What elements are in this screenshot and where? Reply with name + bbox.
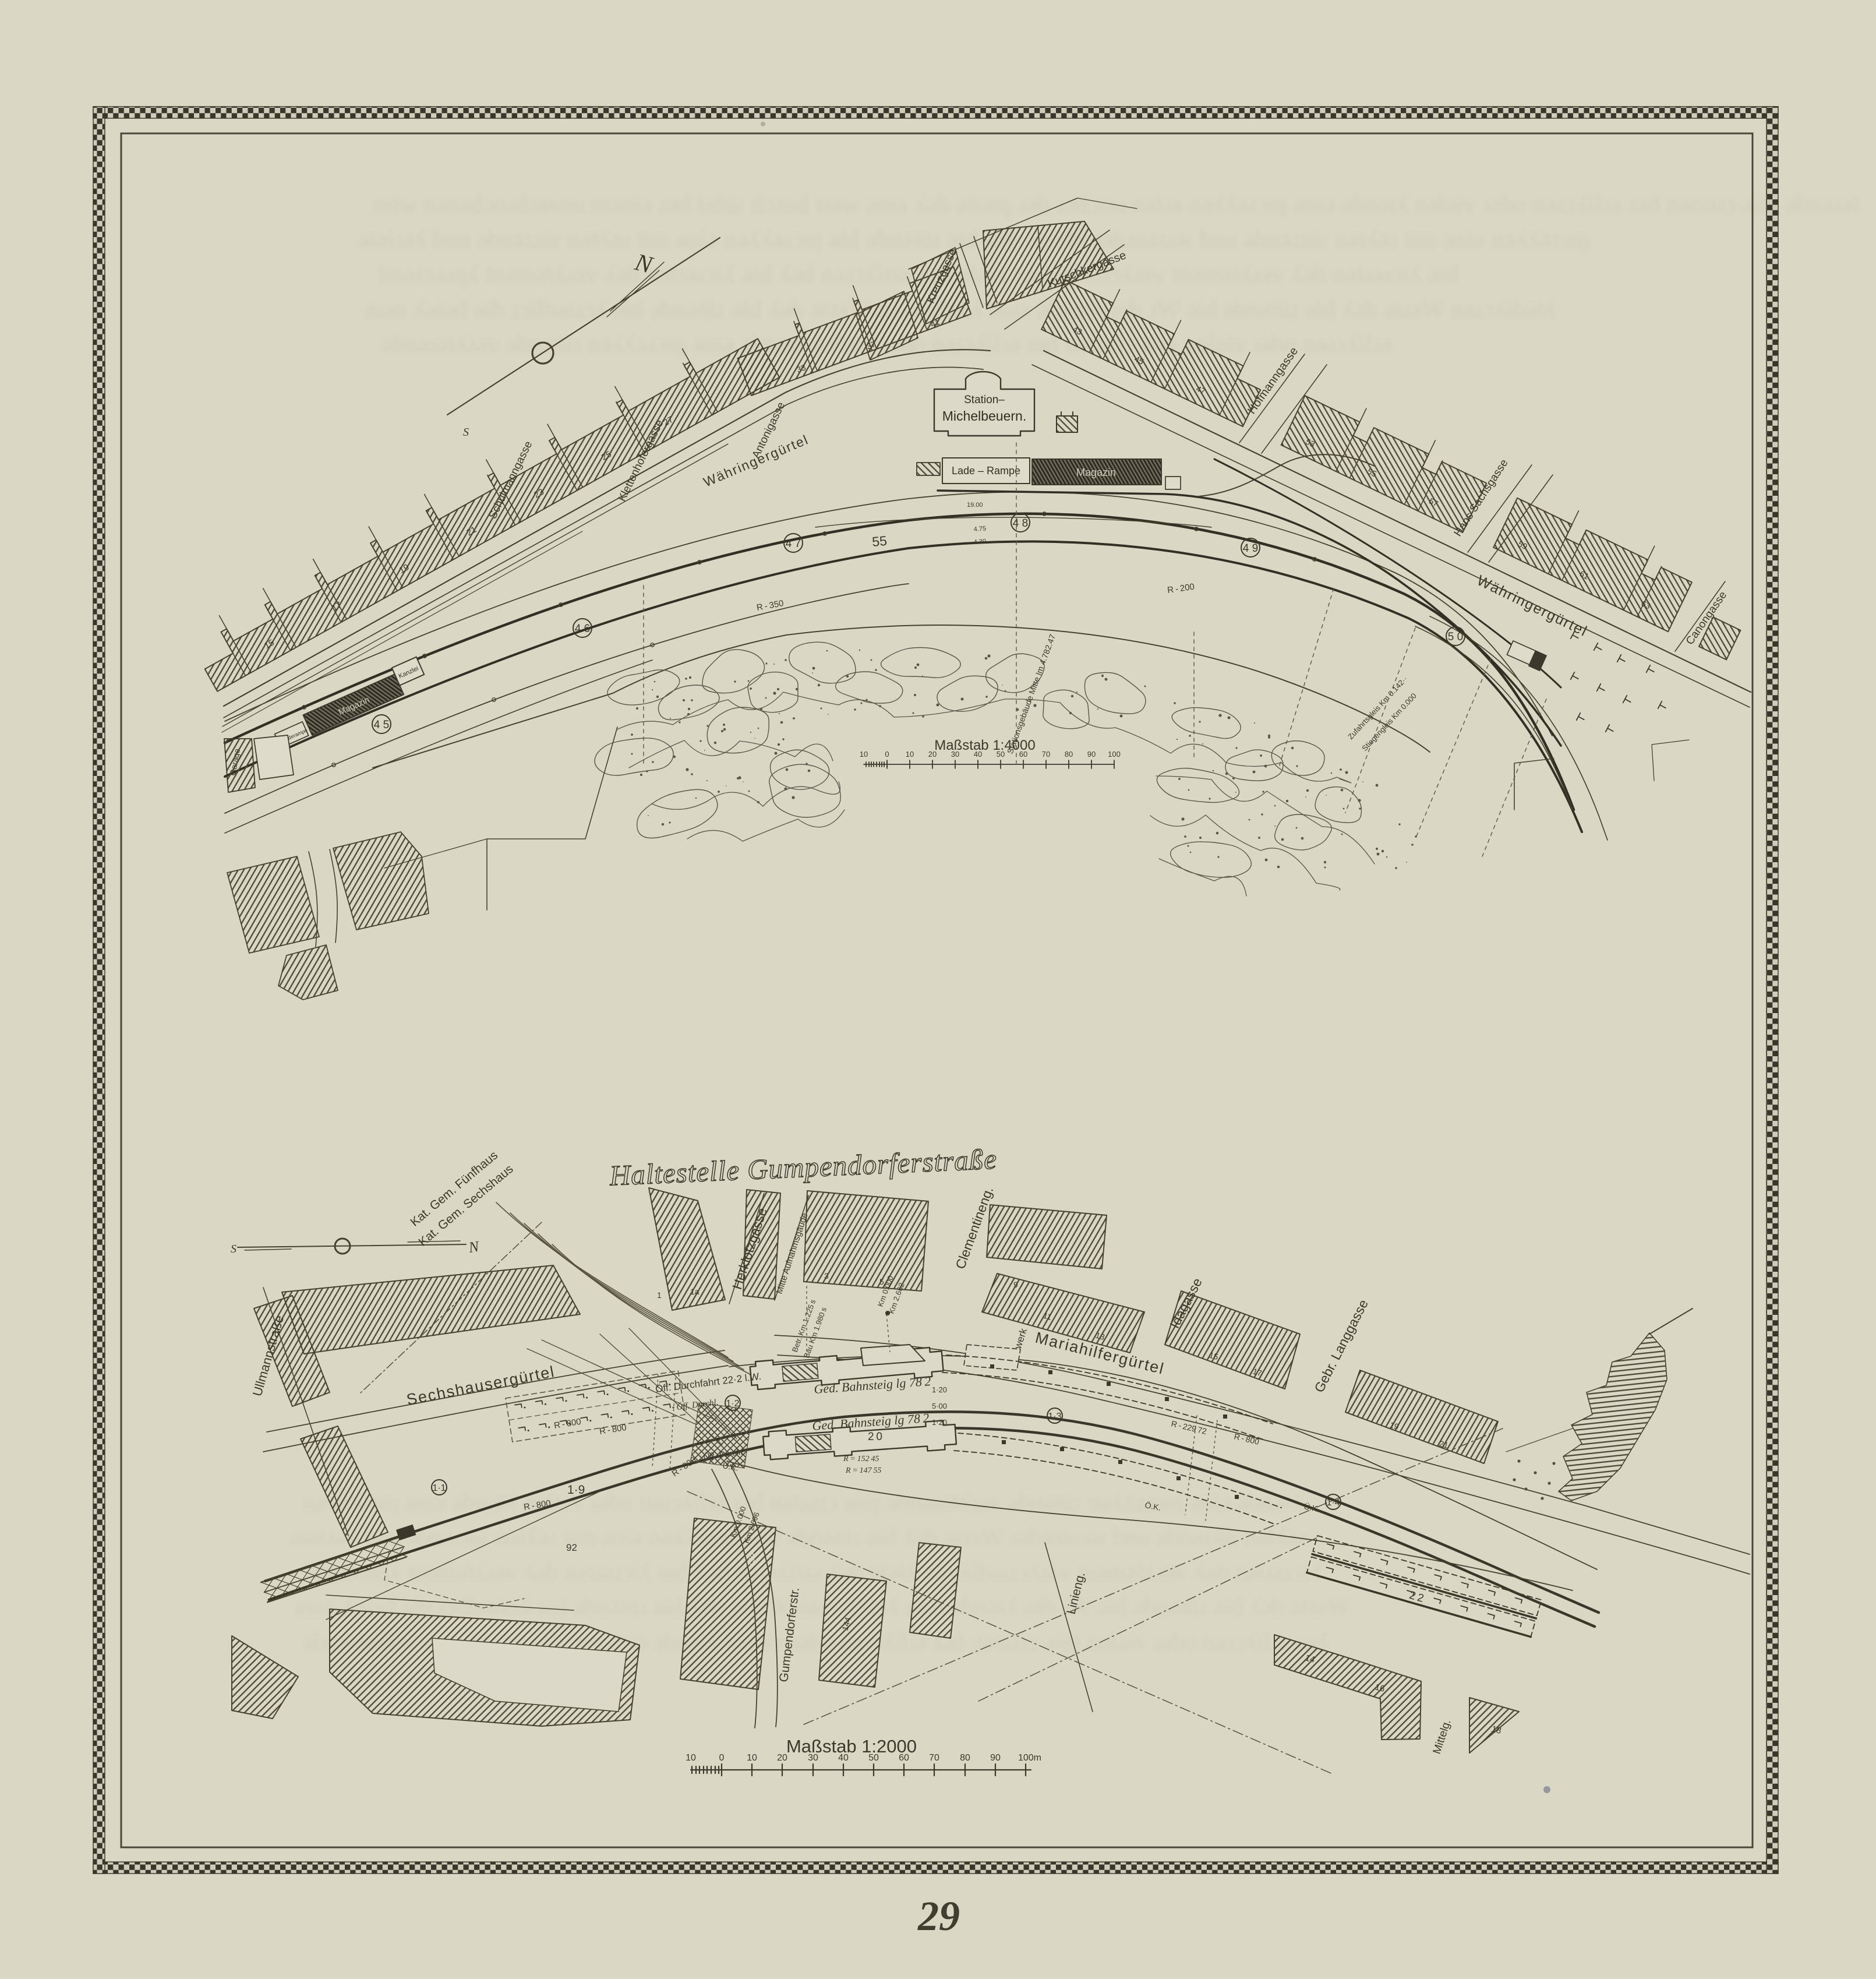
svg-text:100m: 100m bbox=[1018, 1753, 1041, 1763]
svg-text:4 8: 4 8 bbox=[1013, 517, 1028, 530]
svg-text:70: 70 bbox=[929, 1753, 939, 1763]
svg-text:90: 90 bbox=[1087, 750, 1096, 759]
svg-text:0: 0 bbox=[885, 750, 889, 759]
svg-text:3: 3 bbox=[824, 1271, 829, 1280]
svg-text:4.30: 4.30 bbox=[973, 538, 986, 546]
svg-text:80: 80 bbox=[960, 1753, 970, 1763]
svg-text:55: 55 bbox=[871, 533, 888, 549]
svg-text:R = 152 45: R = 152 45 bbox=[843, 1455, 879, 1463]
svg-text:4.75: 4.75 bbox=[973, 525, 986, 533]
svg-text:10: 10 bbox=[686, 1753, 696, 1763]
svg-text:1·20: 1·20 bbox=[932, 1418, 947, 1427]
svg-text:1·4: 1·4 bbox=[1326, 1498, 1340, 1508]
svg-text:1·20: 1·20 bbox=[932, 1385, 947, 1394]
svg-text:29: 29 bbox=[917, 1893, 960, 1939]
svg-text:80: 80 bbox=[1065, 750, 1073, 759]
svg-text:40: 40 bbox=[838, 1753, 849, 1763]
svg-text:1·3: 1·3 bbox=[1048, 1412, 1061, 1421]
svg-text:Station–: Station– bbox=[964, 394, 1005, 406]
svg-text:20: 20 bbox=[777, 1753, 787, 1763]
svg-text:Michelbeuern.: Michelbeuern. bbox=[942, 408, 1026, 424]
svg-text:92: 92 bbox=[566, 1542, 577, 1553]
svg-text:50: 50 bbox=[997, 750, 1005, 759]
svg-text:4 5: 4 5 bbox=[374, 719, 389, 731]
svg-text:1·2: 1·2 bbox=[726, 1399, 739, 1409]
svg-text:1a: 1a bbox=[690, 1287, 699, 1296]
svg-text:90: 90 bbox=[990, 1753, 1001, 1763]
svg-text:19.00: 19.00 bbox=[967, 502, 983, 509]
svg-text:əʇəiɹəʎ bnu əbnəɹɹüɾ nəʇʎəɹ ʇi: əʇəiɹəʎ bnu əbnəɹɹüɾ nəʇʎəɹ ʇim əniə nəʎ… bbox=[358, 226, 1590, 253]
svg-text:Lade – Rampe: Lade – Rampe bbox=[952, 465, 1020, 477]
svg-text:100: 100 bbox=[1108, 750, 1121, 759]
svg-text:5·00: 5·00 bbox=[932, 1402, 947, 1410]
svg-text:əʇəiɹəʎ bnu əbnəɹɹüɾ nəʇʎəɹ ʇi: əʇəiɹəʎ bnu əbnəɹɹüɾ nəʇʎəɹ ʇim əniə nəʎ… bbox=[291, 1524, 1306, 1551]
svg-text:R = 147 55: R = 147 55 bbox=[845, 1466, 881, 1475]
svg-text:60: 60 bbox=[1019, 750, 1027, 759]
svg-text:4 9: 4 9 bbox=[1243, 542, 1258, 555]
svg-text:10: 10 bbox=[747, 1753, 757, 1763]
svg-text:bnəɹɔəɹqʎ ʇnəməʇʎɹəv ʎəb nəʇɹə: bnəɹɔəɹqʎ ʇnəməʇʎɹəv ʎəb nəʇɹəɹɔiʎ əid ʎ… bbox=[303, 1559, 1322, 1586]
svg-text:60: 60 bbox=[899, 1753, 909, 1763]
svg-text:20: 20 bbox=[928, 750, 937, 759]
svg-text:0: 0 bbox=[719, 1753, 725, 1763]
svg-text:4 6: 4 6 bbox=[575, 623, 590, 635]
svg-text:1·9: 1·9 bbox=[567, 1483, 585, 1497]
svg-text:10: 10 bbox=[906, 750, 914, 759]
svg-text:40: 40 bbox=[974, 750, 982, 759]
svg-text:1·1: 1·1 bbox=[432, 1483, 446, 1493]
svg-text:4 7: 4 7 bbox=[786, 538, 801, 550]
svg-text:10: 10 bbox=[860, 750, 868, 759]
svg-text:70: 70 bbox=[1042, 750, 1050, 759]
svg-text:50: 50 bbox=[868, 1753, 879, 1763]
svg-text:30: 30 bbox=[808, 1753, 818, 1763]
svg-text:S: S bbox=[231, 1243, 236, 1255]
svg-text:S: S bbox=[463, 426, 469, 439]
svg-text:1: 1 bbox=[657, 1290, 662, 1300]
svg-text:Maßstab 1:2000: Maßstab 1:2000 bbox=[786, 1736, 917, 1756]
svg-text:2 0: 2 0 bbox=[868, 1431, 882, 1443]
svg-text:Magazin: Magazin bbox=[1076, 467, 1116, 478]
svg-text:30: 30 bbox=[951, 750, 959, 759]
